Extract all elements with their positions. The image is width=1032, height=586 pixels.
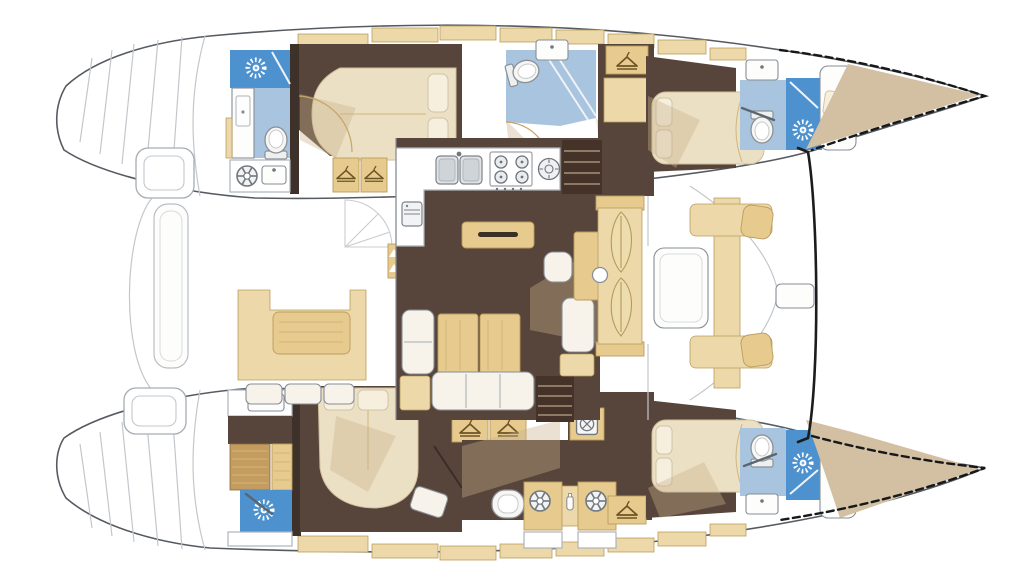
aft-cockpit	[238, 200, 400, 404]
cabinet	[604, 78, 648, 122]
stove-icon	[490, 152, 532, 190]
pillow	[428, 74, 448, 112]
sink-icon	[746, 494, 778, 514]
forward-cockpit	[648, 148, 816, 442]
porthole-icon	[530, 491, 550, 511]
seat-pad	[776, 284, 814, 308]
toilet-icon	[265, 127, 287, 159]
transom-bench	[154, 204, 188, 368]
corner-cabinet	[400, 376, 430, 410]
wardrobe-locker	[608, 496, 646, 524]
teak-grate	[230, 444, 292, 490]
porthole-icon	[237, 166, 257, 186]
wall	[292, 388, 301, 536]
port-hull-interior	[226, 26, 985, 196]
bottle-icon	[567, 494, 573, 511]
sink-icon	[536, 40, 568, 60]
dining-table-leaf	[480, 314, 520, 376]
dining-table-leaf	[438, 314, 478, 376]
fridge-icon	[402, 202, 422, 226]
helm-seat-port	[136, 148, 194, 198]
nav-desk	[574, 232, 600, 300]
stairs-to-starboard-hull	[536, 376, 574, 422]
wardrobe-locker	[606, 46, 648, 74]
cockpit-table	[654, 248, 708, 328]
pillow	[358, 390, 388, 410]
port-aft-head	[226, 44, 299, 194]
knob	[241, 110, 244, 113]
handle	[478, 232, 518, 237]
side-table	[560, 354, 594, 376]
sink-icon	[746, 60, 778, 80]
bench-cushions	[246, 384, 354, 404]
sofa	[432, 372, 534, 410]
round-burner-icon	[539, 159, 560, 180]
pillow	[656, 426, 672, 454]
porthole-icon	[586, 491, 606, 511]
salon-entry-door-swing	[345, 200, 392, 247]
wall	[290, 44, 299, 194]
sink-cabinet	[232, 88, 254, 158]
floorplan-canvas	[0, 0, 1032, 586]
sink-icon	[262, 166, 286, 184]
swim-platform-arc	[129, 198, 152, 390]
island-sideboard	[462, 222, 534, 248]
cockpit-table	[273, 312, 350, 354]
door-knob	[593, 268, 608, 283]
stairs-to-port-hull	[562, 140, 602, 194]
toilet-icon	[492, 490, 524, 518]
nav-seat	[544, 252, 572, 282]
side-seat	[562, 298, 594, 352]
helm-seat-starboard	[124, 388, 186, 434]
forward-door	[593, 196, 645, 356]
port-corridor	[598, 44, 654, 196]
